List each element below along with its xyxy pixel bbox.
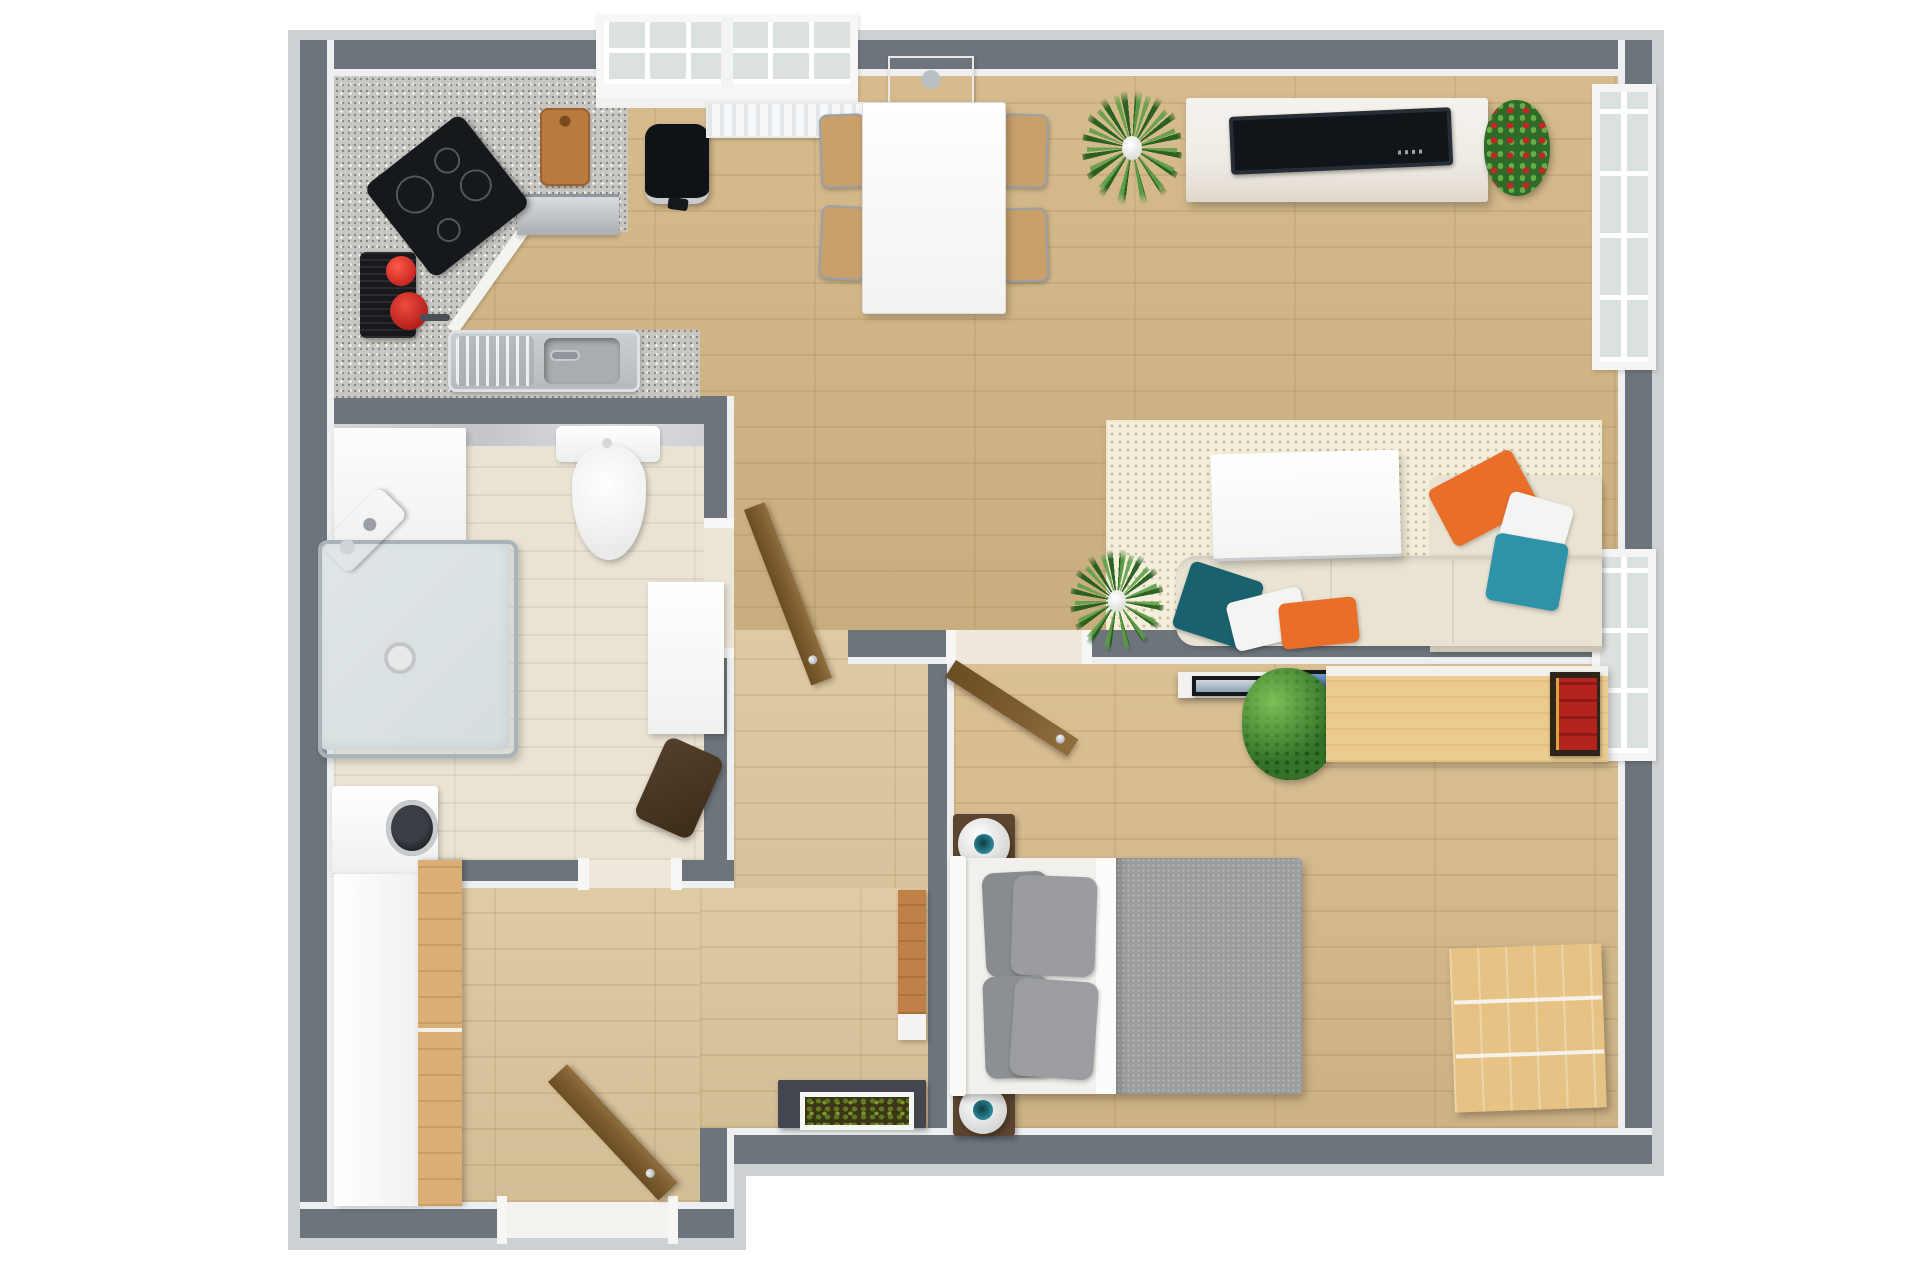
doorframe-bath-south-r: [671, 858, 682, 890]
door-handle: [807, 654, 819, 666]
coffee-machine-tank: [390, 292, 428, 330]
wall-bathroom-south-b: [673, 860, 734, 888]
dining-chair: [1001, 113, 1050, 189]
wall-bottom-left-a: [300, 1202, 505, 1238]
bed-pillow: [1009, 977, 1100, 1081]
kitchen-faucet: [552, 352, 578, 359]
coffee-machine-cup: [386, 256, 416, 286]
cutting-board: [540, 108, 590, 186]
dining-chair: [819, 113, 868, 189]
wall-top-right: [856, 40, 1652, 76]
threshold-bathroom-south-door: [587, 860, 673, 888]
window-top-divider: [721, 18, 733, 88]
sofa-seam: [1452, 560, 1454, 644]
plant-palm: [1082, 86, 1182, 210]
doorframe-bath-south-l: [578, 858, 589, 890]
dining-chair: [1001, 207, 1050, 283]
dishwasher-front: [517, 194, 619, 235]
threshold-entry-door: [505, 1202, 668, 1238]
door-handle: [644, 1167, 657, 1180]
hallway-bench: [898, 890, 926, 1014]
trash-bin-pedal: [667, 197, 688, 212]
plant-bush: [1242, 668, 1338, 780]
kitchen-sink-drainboard: [456, 336, 534, 386]
shower-glass: [318, 540, 518, 758]
wardrobe-doors: [418, 860, 462, 1206]
wardrobe-body: [334, 874, 420, 1206]
doorframe-bedroom-l: [946, 630, 956, 664]
bathroom-desk: [648, 582, 724, 734]
pillow-teal: [1485, 532, 1570, 612]
dining-chair: [818, 205, 868, 281]
wall-bathroom-east-a: [704, 396, 734, 526]
bed-blanket: [1116, 858, 1302, 1094]
dining-table: [862, 102, 1006, 314]
door-handle: [1054, 733, 1066, 745]
hallway-bench-cap: [898, 1014, 926, 1040]
wall-art: [888, 56, 974, 108]
wall-top-left: [300, 40, 598, 76]
dresser: [1449, 943, 1607, 1112]
toilet-flush-button: [602, 438, 612, 448]
wall-living-south-a: [848, 630, 954, 664]
bed-headboard: [950, 856, 966, 1096]
wall-bottom-right: [728, 1128, 1652, 1164]
pillow-orange: [1278, 596, 1360, 650]
red-books: [1556, 678, 1597, 750]
wall-bathroom-north: [334, 396, 704, 424]
window-right-top-glass: [1600, 92, 1648, 362]
lamp-shade-center: [974, 834, 994, 854]
wardrobe-door-gap: [418, 1028, 462, 1032]
doorframe-entry-r: [668, 1196, 678, 1244]
planter-box: [800, 1092, 914, 1130]
kitchen-sink-basin: [544, 338, 620, 384]
coffee-machine-arm: [420, 314, 450, 321]
lamp-shade-center: [973, 1100, 993, 1120]
bed-pillow: [1010, 875, 1097, 978]
plant-red-flowers: [1484, 100, 1550, 196]
shower-drain: [384, 642, 416, 674]
threshold-bedroom-door: [954, 630, 1084, 664]
trash-bin: [645, 124, 709, 204]
tv-screen: [1229, 107, 1453, 175]
plant-palm: [1070, 546, 1164, 656]
doorframe-bathroom-t: [704, 518, 734, 528]
coffee-table: [1211, 450, 1402, 562]
washing-machine-door: [386, 800, 438, 856]
floor-plan-canvas: [0, 0, 1920, 1273]
bed-sheet-fold: [1096, 858, 1116, 1094]
doorframe-entry-l: [497, 1196, 507, 1244]
